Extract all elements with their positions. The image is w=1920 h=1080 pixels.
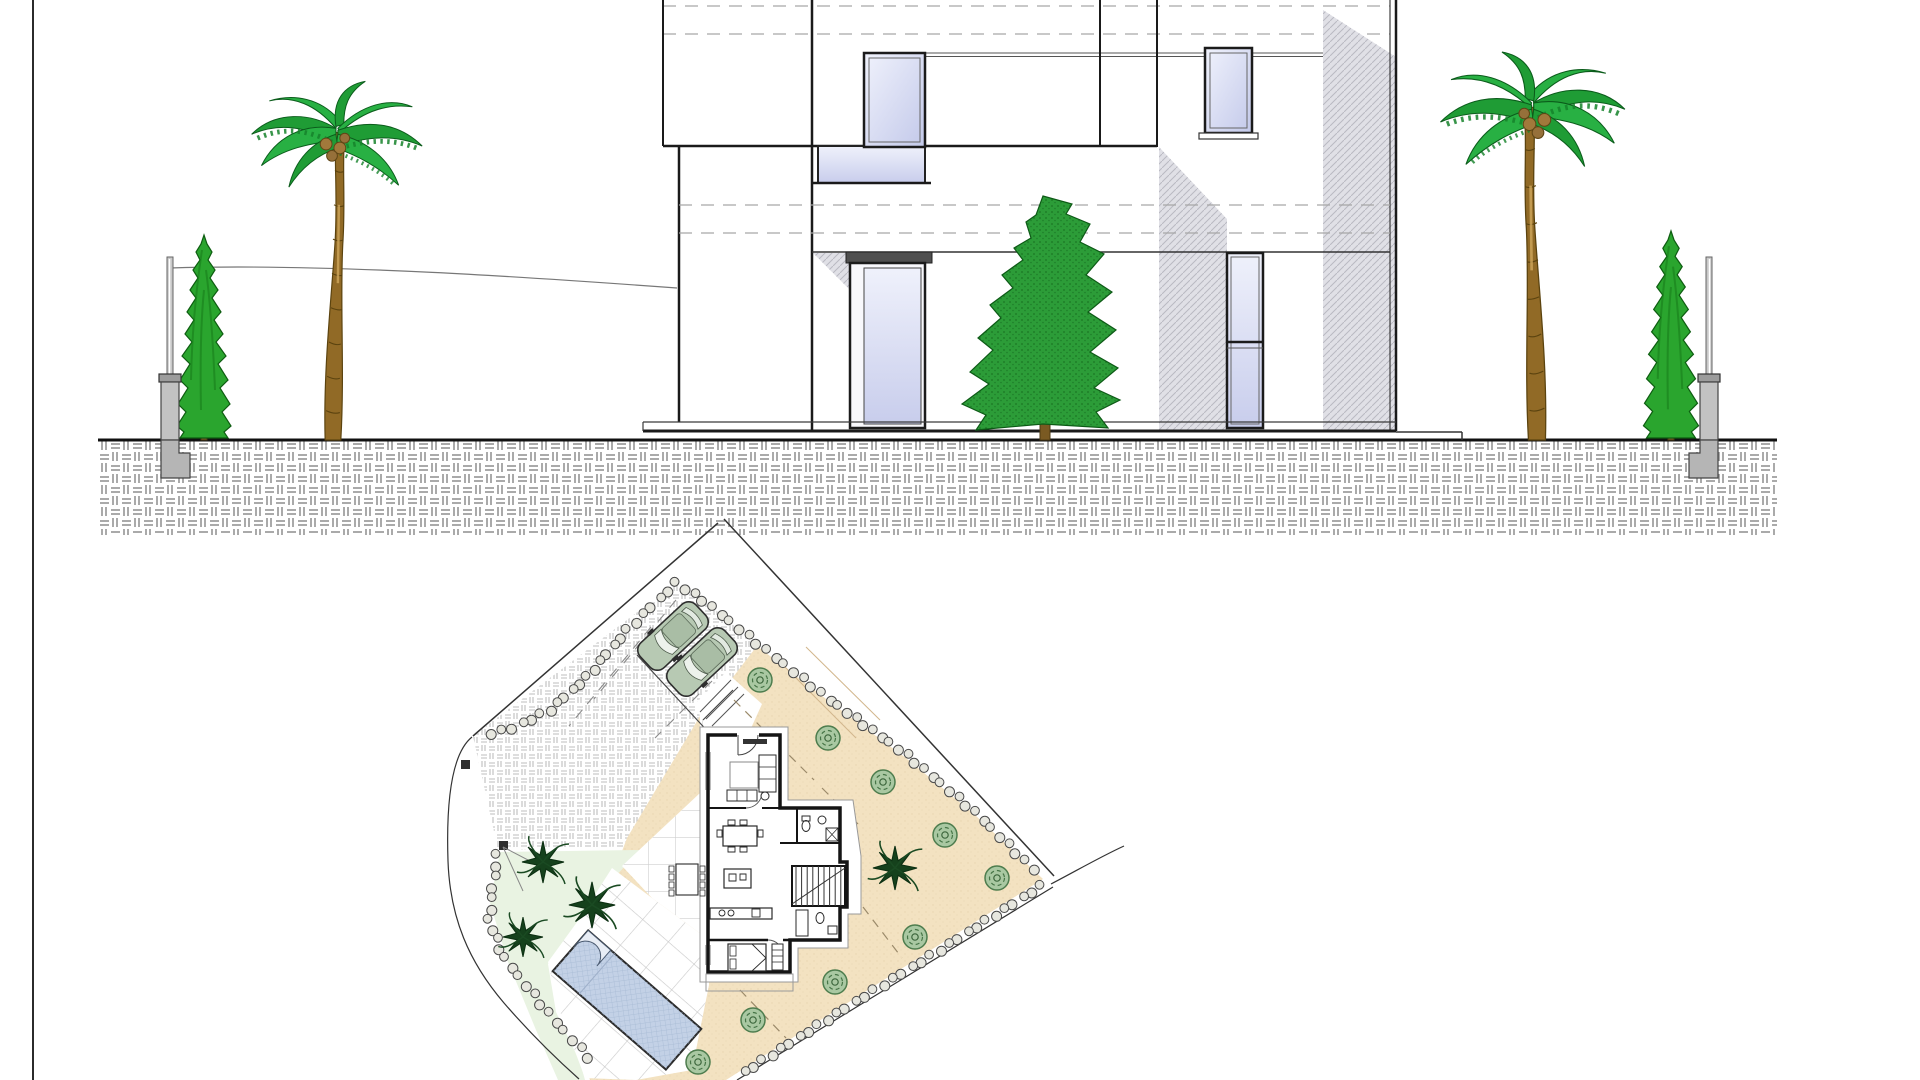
window-upper-left — [864, 53, 925, 147]
entrance-door-glass — [864, 268, 921, 424]
ground-hatch — [98, 441, 1777, 535]
pebble — [567, 1036, 577, 1046]
shadow-porch-hatch — [1159, 147, 1227, 431]
pebble — [868, 985, 877, 994]
pebble — [842, 708, 852, 718]
pebble — [832, 1008, 841, 1017]
pebble — [853, 713, 862, 722]
front-door-gap — [737, 732, 759, 738]
pebble — [955, 792, 964, 801]
side-table — [761, 792, 769, 800]
bush — [823, 970, 847, 994]
pebble — [757, 1055, 766, 1064]
pebble — [507, 724, 517, 734]
pebble — [691, 589, 700, 598]
bush — [686, 1050, 710, 1074]
elevation-ground — [98, 440, 1777, 535]
pebble — [935, 778, 944, 787]
pebble — [768, 1051, 778, 1061]
pebble — [500, 952, 509, 961]
pebble — [904, 749, 913, 758]
dining-table — [723, 826, 757, 846]
pebble — [800, 673, 809, 682]
pebble — [535, 709, 544, 718]
cypress-right — [1643, 231, 1698, 440]
pebble — [483, 914, 492, 923]
door-lintel — [846, 252, 932, 263]
pebble — [531, 989, 540, 998]
elevation-front-tree — [962, 196, 1120, 440]
pebble — [909, 758, 919, 768]
pebble — [521, 982, 531, 992]
bush — [741, 1008, 765, 1032]
pebble — [697, 596, 707, 606]
pebble — [491, 862, 501, 872]
kitchen-island — [724, 869, 751, 888]
pebble — [833, 701, 842, 710]
pebble — [1010, 849, 1020, 859]
pebble — [980, 915, 989, 924]
pebble — [852, 996, 861, 1005]
pebble — [1020, 855, 1029, 864]
pebble — [558, 1025, 567, 1034]
pebble — [812, 1020, 821, 1029]
fence-wire — [170, 267, 677, 288]
pebble — [945, 939, 954, 948]
pebble — [513, 971, 522, 980]
bush — [871, 770, 895, 794]
pebble — [491, 849, 500, 858]
front-tree-speckle — [962, 196, 1120, 430]
villa-elevation-and-site-plan — [0, 0, 1920, 1080]
pebble — [745, 630, 754, 639]
pebble — [741, 1067, 750, 1076]
pebble — [995, 833, 1005, 843]
pebble — [569, 685, 578, 694]
tv-cabinet — [743, 739, 767, 744]
outdoor-dining-table — [676, 864, 698, 895]
pebble — [497, 725, 506, 734]
pebble — [590, 665, 600, 675]
bush — [903, 925, 927, 949]
pebble — [925, 950, 934, 959]
shadow-door-hatch — [813, 253, 851, 291]
pebble — [960, 801, 970, 811]
pebble — [888, 973, 897, 982]
shadow-strip-right-hatch — [1323, 10, 1396, 431]
house-elevation — [170, 0, 1462, 440]
pebble — [596, 656, 605, 665]
pebble — [920, 764, 929, 773]
pebble — [632, 618, 642, 628]
pebble — [776, 1043, 785, 1052]
pebble — [1005, 839, 1014, 848]
pebble — [670, 577, 679, 586]
palm-tree-left — [252, 81, 423, 440]
bush — [933, 823, 957, 847]
pebble — [965, 927, 974, 936]
pebble — [581, 671, 590, 680]
bush — [985, 866, 1009, 890]
pebble — [884, 737, 893, 746]
bush — [816, 726, 840, 750]
window-upper-right-sill — [1199, 133, 1258, 139]
pebble — [880, 981, 890, 991]
sofa-row — [727, 790, 757, 801]
pebble — [824, 1016, 834, 1026]
cypress-left — [177, 235, 231, 440]
pebble — [487, 884, 497, 894]
window-upper-right — [1205, 48, 1252, 133]
pebble — [909, 962, 918, 971]
pebble — [621, 624, 630, 633]
architectural-drawing-sheet — [0, 0, 1920, 1080]
pebble — [1035, 880, 1044, 889]
pebble — [582, 1053, 592, 1063]
pebble — [751, 639, 761, 649]
pebble — [486, 730, 496, 740]
pebble — [817, 687, 826, 696]
pebble — [553, 698, 562, 707]
pebble — [858, 721, 868, 731]
pebble — [789, 668, 799, 678]
pebble — [971, 806, 980, 815]
pebble — [986, 823, 995, 832]
pebble — [734, 625, 744, 635]
pebble — [708, 602, 717, 611]
pebble — [519, 718, 528, 727]
pebble — [494, 933, 503, 942]
bed — [728, 944, 766, 971]
pebble — [639, 609, 648, 618]
pebble — [868, 725, 877, 734]
pebble — [805, 682, 815, 692]
gate-post-plan-a — [461, 760, 470, 769]
pebble — [945, 787, 955, 797]
pebble — [1020, 892, 1029, 901]
pebble — [893, 745, 903, 755]
pebble — [544, 1007, 553, 1016]
pebble — [724, 616, 733, 625]
kerb-east — [1051, 846, 1124, 884]
pebble — [487, 893, 496, 902]
pebble — [657, 593, 666, 602]
palm-tree-right — [1440, 52, 1624, 440]
pebble — [796, 1032, 805, 1041]
pebble — [491, 871, 500, 880]
pebble — [1000, 904, 1009, 913]
wardrobe — [772, 944, 783, 970]
pebble — [779, 659, 788, 668]
pebble — [680, 585, 690, 595]
pebble — [937, 946, 947, 956]
pebble — [611, 640, 620, 649]
pebble — [992, 911, 1002, 921]
pebble — [1029, 865, 1039, 875]
pebble — [578, 1043, 587, 1052]
pebble — [762, 645, 771, 654]
bush — [748, 668, 772, 692]
pebble — [487, 905, 497, 915]
sofa-corner — [759, 755, 776, 792]
window-lower-right — [1227, 253, 1263, 428]
pebble — [535, 1000, 545, 1010]
pebble — [547, 706, 557, 716]
band-window — [818, 146, 925, 183]
